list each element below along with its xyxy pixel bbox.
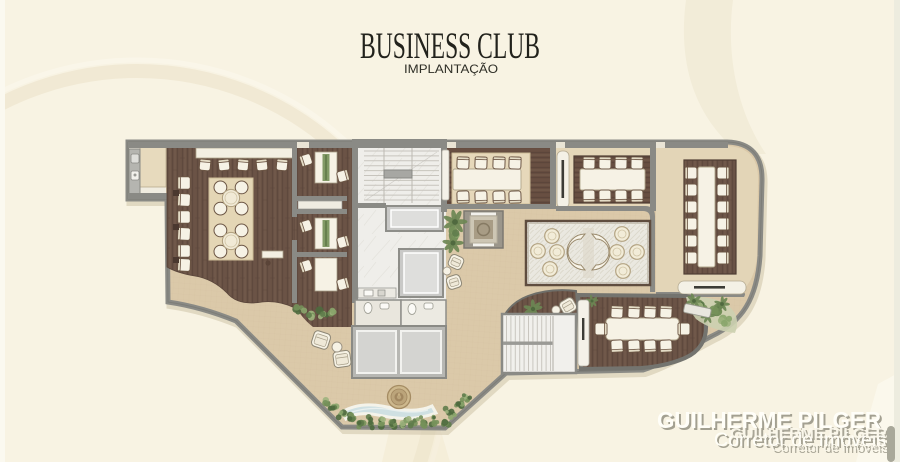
svg-text:BUSINESS CLUB: BUSINESS CLUB: [360, 26, 540, 67]
svg-text:Corretor de Imóveis: Corretor de Imóveis: [771, 439, 888, 454]
svg-text:IMPLANTAÇÃO: IMPLANTAÇÃO: [404, 62, 498, 76]
